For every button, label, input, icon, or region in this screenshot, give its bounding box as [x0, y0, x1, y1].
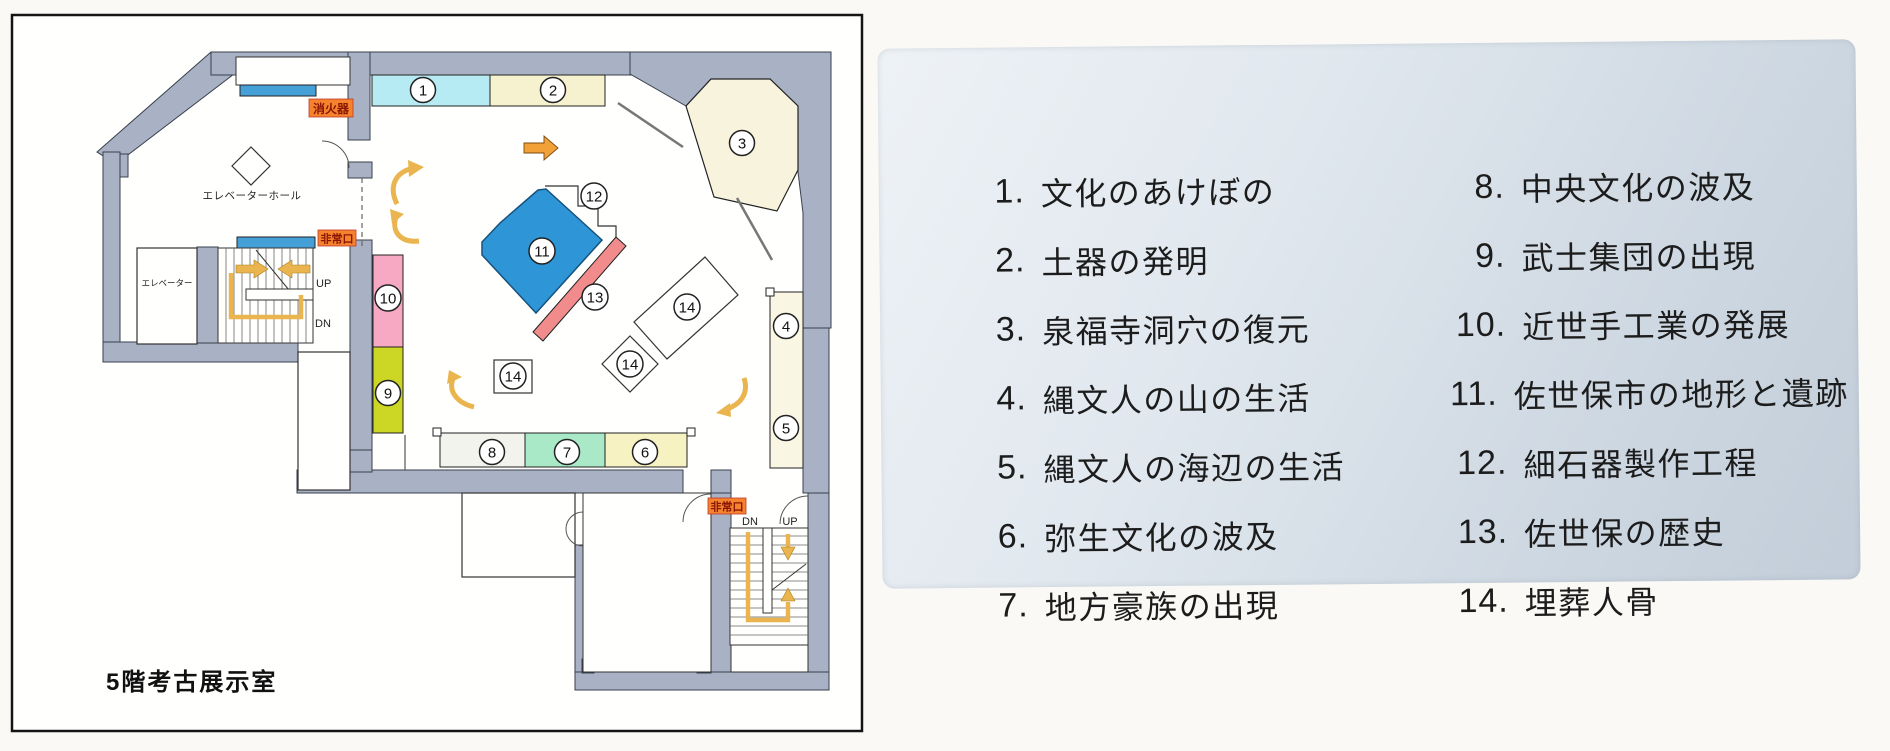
exhibit-marker-1: 1: [411, 78, 436, 103]
svg-text:13: 13: [587, 290, 604, 307]
exhibit-marker-13: 13: [582, 284, 608, 310]
strip45-hook: [766, 288, 774, 296]
room-b: [583, 493, 711, 672]
shaft-room: [298, 352, 350, 490]
exhibit-marker-5: 5: [774, 416, 799, 441]
legend-item-number: 4.: [969, 379, 1027, 419]
legend-item-2: 2.土器の発明: [967, 222, 1448, 296]
legend-item-label: 中央文化の波及: [1521, 162, 1756, 210]
room-under-stairs: [731, 645, 808, 672]
elevator-label: エレベーター: [141, 278, 192, 288]
legend-item-number: 2.: [967, 241, 1025, 281]
emergency-exit-sign-lower: 非常口: [708, 498, 746, 514]
strip-hook-right: [687, 428, 695, 436]
wall-left: [103, 152, 120, 362]
legend-item-number: 12.: [1449, 444, 1507, 484]
legend-item-14: 14.埋葬人骨: [1450, 563, 1851, 636]
svg-text:14: 14: [505, 369, 522, 386]
svg-text:8: 8: [488, 445, 496, 462]
wall-mid-lower: [350, 240, 372, 470]
legend-item-6: 6.弥生文化の波及: [970, 498, 1451, 572]
svg-text:9: 9: [384, 386, 392, 403]
legend-item-label: 縄文人の海辺の生活: [1043, 442, 1345, 491]
legend-item-number: 6.: [970, 517, 1028, 557]
legend-item-label: 弥生文化の波及: [1044, 511, 1279, 559]
wall-bottom-right: [575, 672, 829, 690]
legend-item-label: 文化のあけぼの: [1041, 166, 1276, 214]
lower-staircase: [730, 528, 808, 645]
emergency-exit-label-upper: 非常口: [321, 232, 354, 246]
legend-item-label: 土器の発明: [1041, 236, 1209, 284]
legend-item-label: 佐世保の歴史: [1524, 507, 1725, 555]
legend-panel: 1.文化のあけぼの 2.土器の発明 3.泉福寺洞穴の復元 4.縄文人の山の生活 …: [877, 39, 1860, 588]
legend-column-right: 8.中央文化の波及 9.武士集団の出現 10.近世手工業の発展 11.佐世保市の…: [1446, 149, 1851, 636]
upper-staircase: [218, 248, 313, 343]
exhibit-marker-10: 10: [375, 285, 401, 311]
svg-text:10: 10: [380, 291, 397, 308]
legend-column-left: 1.文化のあけぼの 2.土器の発明 3.泉福寺洞穴の復元 4.縄文人の山の生活 …: [966, 153, 1451, 641]
up-label-upper: UP: [316, 278, 331, 290]
wall-right-lower: [808, 493, 829, 690]
exhibit-marker-4: 4: [774, 314, 799, 339]
legend-item-label: 泉福寺洞穴の復元: [1042, 304, 1310, 353]
exhibit-marker-12: 12: [581, 183, 607, 209]
window-bar-top: [240, 85, 316, 96]
legend-item-9: 9.武士集団の出現: [1447, 218, 1848, 291]
legend-item-label: 地方豪族の出現: [1045, 580, 1280, 628]
legend-item-12: 12.細石器製作工程: [1449, 425, 1850, 498]
legend-item-number: 11.: [1449, 375, 1498, 414]
svg-text:12: 12: [586, 189, 603, 206]
legend-item-label: 縄文人の山の生活: [1043, 373, 1311, 422]
dn-label-lower: DN: [742, 516, 758, 528]
window-bar-stairs: [237, 237, 315, 248]
legend-item-3: 3.泉福寺洞穴の復元: [968, 291, 1449, 365]
alcove: [236, 57, 350, 85]
legend-item-number: 1.: [967, 172, 1025, 212]
wall-right: [803, 328, 829, 493]
svg-text:14: 14: [622, 357, 639, 374]
legend-item-number: 3.: [968, 310, 1026, 350]
exhibit-marker-9: 9: [376, 381, 401, 406]
elevator-hall-label: エレベーターホール: [203, 190, 302, 202]
legend-item-5: 5.縄文人の海辺の生活: [969, 429, 1450, 503]
legend-item-number: 14.: [1451, 582, 1509, 622]
legend-item-1: 1.文化のあけぼの: [966, 153, 1447, 227]
legend-item-label: 近世手工業の発展: [1522, 299, 1790, 348]
fire-extinguisher-label: 消火器: [313, 101, 350, 116]
wall-bottom-main: [297, 470, 683, 493]
exhibit-marker-14a: 14: [674, 294, 700, 320]
exhibit-marker-14b: 14: [617, 351, 643, 377]
exhibit-marker-11: 11: [529, 238, 555, 264]
legend-item-number: 7.: [971, 586, 1029, 626]
legend-item-number: 8.: [1447, 168, 1505, 208]
legend-item-label: 武士集団の出現: [1521, 231, 1756, 279]
dn-label-upper: DN: [315, 318, 331, 330]
svg-text:3: 3: [738, 136, 746, 153]
legend-item-4: 4.縄文人の山の生活: [968, 360, 1449, 434]
screenshot-stage: 消火器 非常口 非常口 エレベーターホール エレベーター UP DN DN UP…: [0, 0, 1890, 751]
legend-item-number: 10.: [1448, 306, 1506, 346]
svg-text:11: 11: [534, 244, 550, 261]
exhibit-marker-3: 3: [730, 131, 755, 156]
exhibit-marker-8: 8: [480, 440, 505, 465]
fire-extinguisher-sign: 消火器: [309, 99, 353, 117]
strip-hook-left: [433, 428, 441, 436]
wall-mid-upper: [348, 52, 370, 140]
svg-text:1: 1: [419, 83, 427, 100]
legend-item-13: 13.佐世保の歴史: [1450, 494, 1851, 567]
exhibit-marker-7: 7: [555, 440, 580, 465]
exhibit-marker-6: 6: [633, 440, 658, 465]
legend-item-8: 8.中央文化の波及: [1446, 149, 1847, 222]
svg-text:7: 7: [563, 445, 571, 462]
svg-text:6: 6: [641, 445, 649, 462]
legend-item-number: 9.: [1447, 237, 1505, 277]
legend-item-11: 11.佐世保市の地形と遺跡: [1448, 356, 1849, 429]
legend-item-10: 10.近世手工業の発展: [1448, 287, 1849, 360]
wall-bottom-ext: [711, 470, 731, 493]
wall-roomB-divider: [711, 493, 731, 672]
legend-item-7: 7.地方豪族の出現: [970, 567, 1451, 641]
wall-elev-stair-divider: [197, 247, 218, 343]
svg-text:4: 4: [782, 319, 790, 336]
legend-item-label: 細石器製作工程: [1523, 438, 1758, 486]
legend-item-label: 埋葬人骨: [1525, 577, 1659, 624]
wall-elevator-bottom: [103, 342, 298, 362]
svg-text:14: 14: [679, 300, 696, 317]
wall-mid-block: [348, 162, 372, 178]
svg-text:2: 2: [549, 83, 557, 100]
legend-item-label: 佐世保市の地形と遺跡: [1514, 368, 1849, 417]
legend-item-number: 5.: [969, 448, 1027, 488]
exhibit-marker-2: 2: [541, 78, 566, 103]
emergency-exit-sign-upper: 非常口: [318, 230, 356, 246]
elevator-room: [137, 248, 197, 344]
emergency-exit-label-lower: 非常口: [711, 500, 744, 514]
legend-item-number: 13.: [1450, 513, 1508, 553]
plan-title: 5階考古展示室: [106, 668, 277, 696]
svg-text:5: 5: [782, 421, 790, 438]
up-label-lower: UP: [782, 516, 797, 528]
exhibit-marker-14c: 14: [500, 363, 526, 389]
